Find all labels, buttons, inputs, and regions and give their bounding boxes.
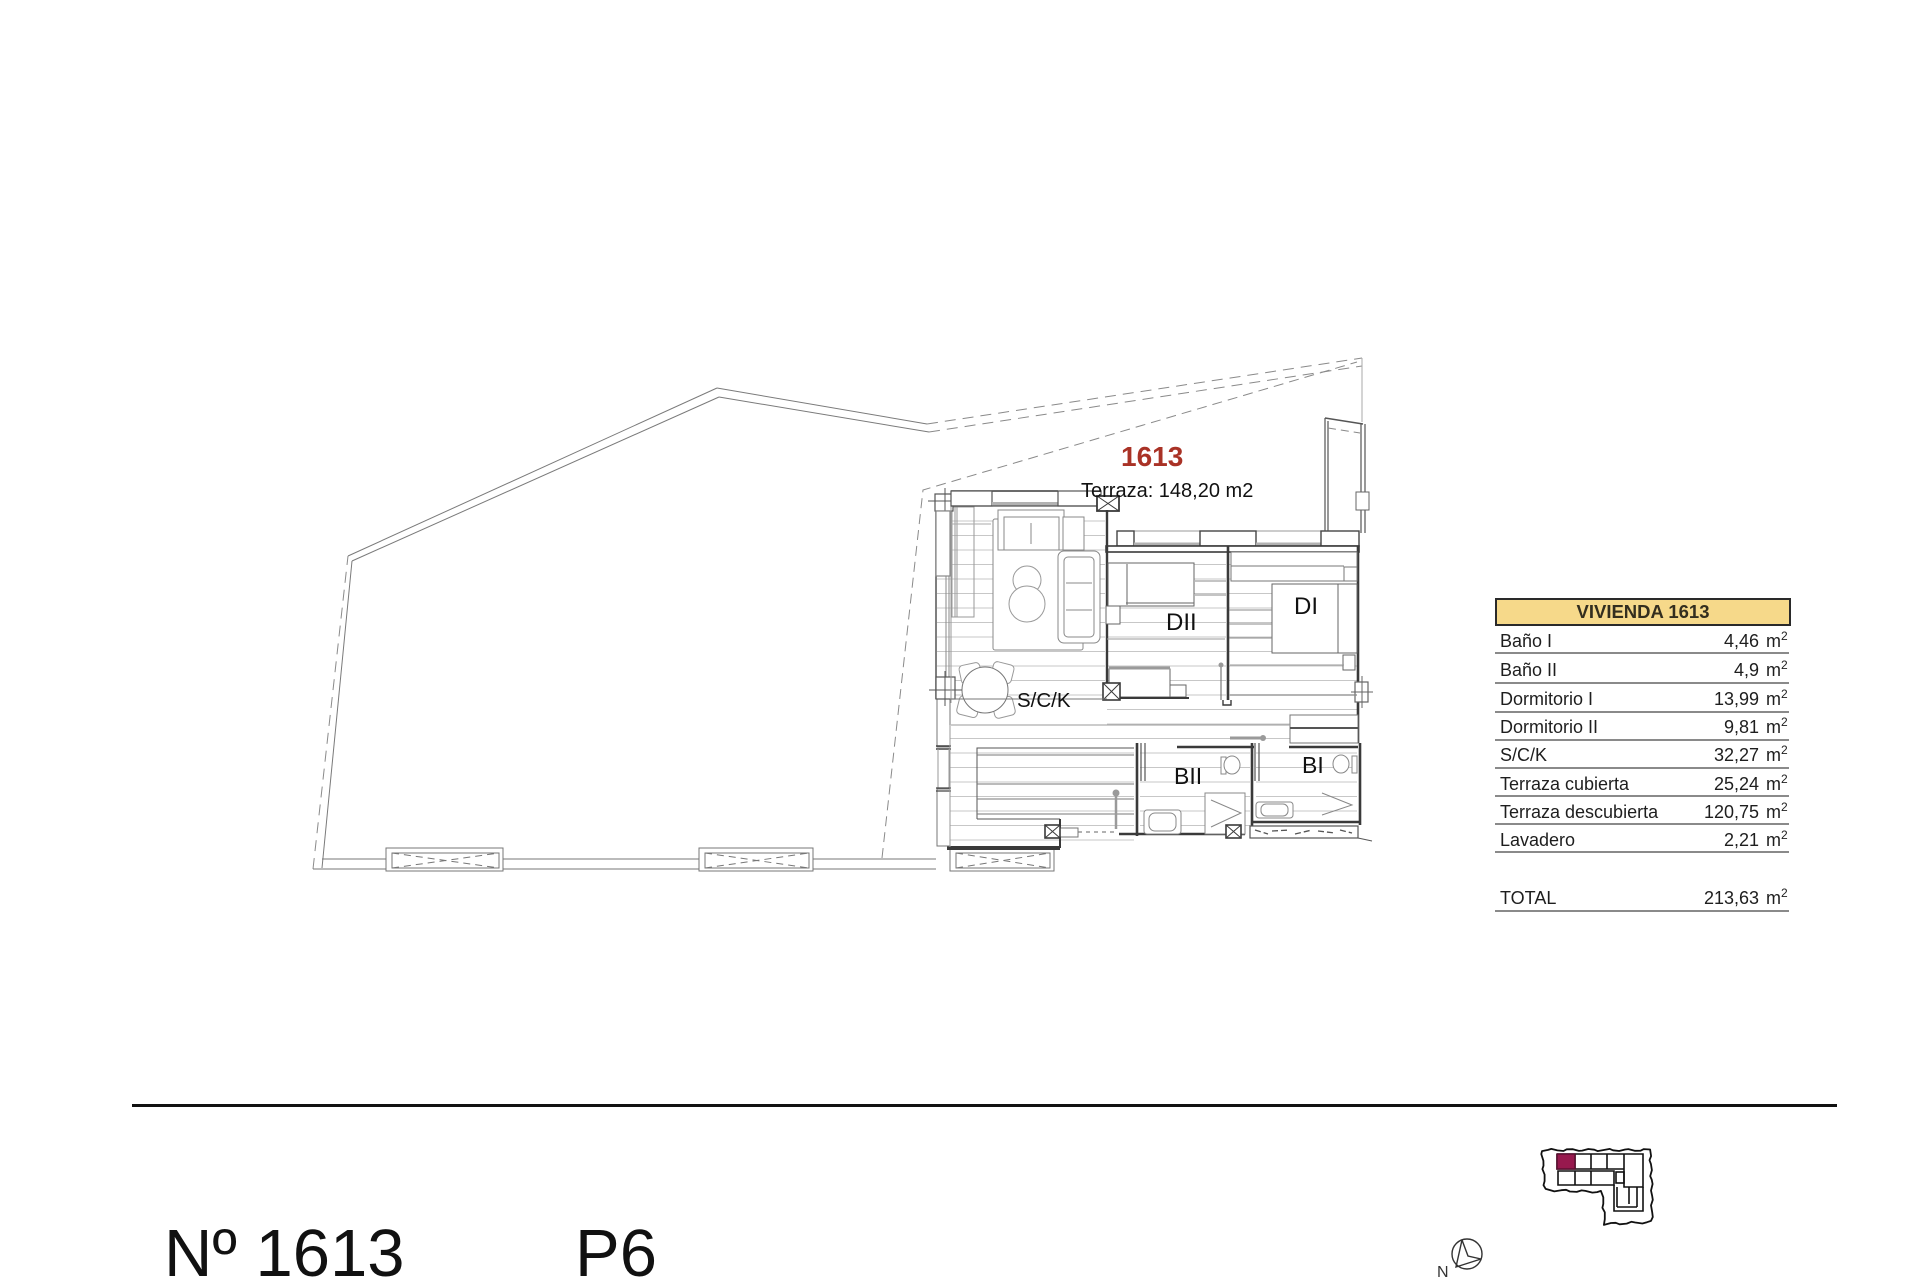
svg-text:S/C/K: S/C/K [1500, 745, 1547, 765]
svg-text:Dormitorio I: Dormitorio I [1500, 689, 1593, 709]
svg-text:Terraza cubierta: Terraza cubierta [1500, 774, 1630, 794]
svg-text:TOTAL: TOTAL [1500, 888, 1556, 908]
svg-text:DII: DII [1166, 609, 1197, 636]
svg-text:2,21: 2,21 [1724, 830, 1759, 850]
svg-text:Nº 1613: Nº 1613 [164, 1216, 405, 1280]
svg-text:213,63: 213,63 [1704, 888, 1759, 908]
svg-text:120,75: 120,75 [1704, 802, 1759, 822]
svg-text:Baño II: Baño II [1500, 660, 1557, 680]
svg-text:9,81: 9,81 [1724, 717, 1759, 737]
svg-text:BI: BI [1302, 752, 1324, 778]
svg-text:VIVIENDA 1613: VIVIENDA 1613 [1577, 601, 1710, 622]
svg-text:25,24: 25,24 [1714, 774, 1759, 794]
svg-text:S/C/K: S/C/K [1017, 689, 1071, 712]
svg-text:Terraza descubierta: Terraza descubierta [1500, 802, 1659, 822]
svg-text:BII: BII [1174, 763, 1202, 789]
svg-text:Dormitorio II: Dormitorio II [1500, 717, 1598, 737]
svg-text:32,27: 32,27 [1714, 745, 1759, 765]
svg-text:4,46: 4,46 [1724, 631, 1759, 651]
svg-text:Terraza: 148,20 m2: Terraza: 148,20 m2 [1081, 480, 1253, 502]
svg-text:13,99: 13,99 [1714, 689, 1759, 709]
svg-text:4,9: 4,9 [1734, 660, 1759, 680]
svg-text:1613: 1613 [1121, 441, 1183, 472]
svg-text:N: N [1437, 1264, 1449, 1280]
svg-text:Lavadero: Lavadero [1500, 830, 1575, 850]
svg-text:Baño I: Baño I [1500, 631, 1552, 651]
svg-text:P6: P6 [575, 1216, 657, 1280]
svg-text:DI: DI [1294, 593, 1318, 620]
